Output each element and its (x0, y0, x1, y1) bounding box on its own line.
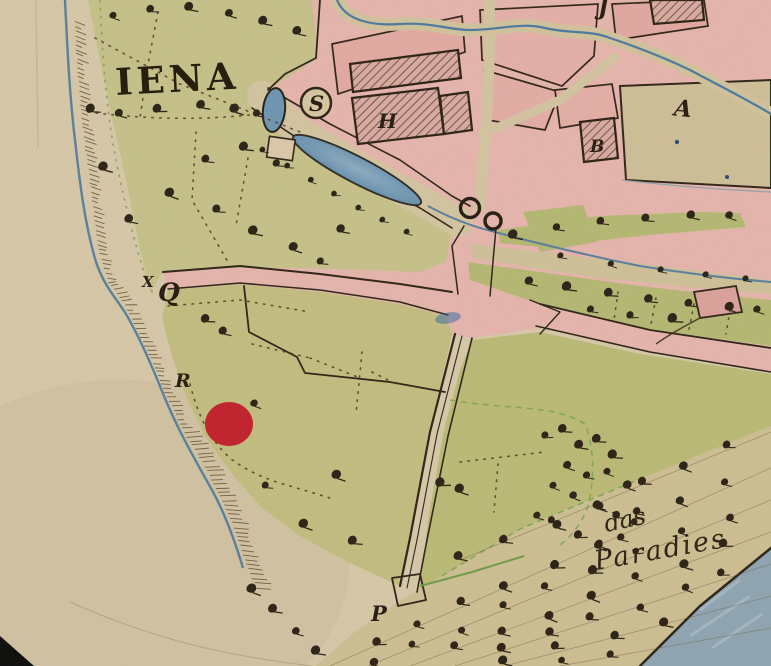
letter-b: B (589, 137, 604, 157)
letter-h: H (377, 109, 398, 133)
historical-map-jena: IENA J S H B A X Q R P das Paradies (0, 0, 771, 666)
letter-s: S (309, 91, 324, 116)
garden-plot (267, 136, 296, 160)
ink-dot (725, 175, 729, 179)
screenshot-stage: IENA J S H B A X Q R P das Paradies (0, 0, 771, 666)
building-east (694, 286, 742, 318)
target-marker[interactable] (205, 402, 253, 446)
building-h (352, 88, 444, 144)
letter-x: X (141, 273, 155, 291)
letter-r: R (174, 370, 191, 392)
letter-p: P (370, 601, 388, 626)
map-title-iena: IENA (114, 54, 240, 104)
letter-q: Q (158, 278, 180, 307)
ink-dot (675, 140, 679, 144)
